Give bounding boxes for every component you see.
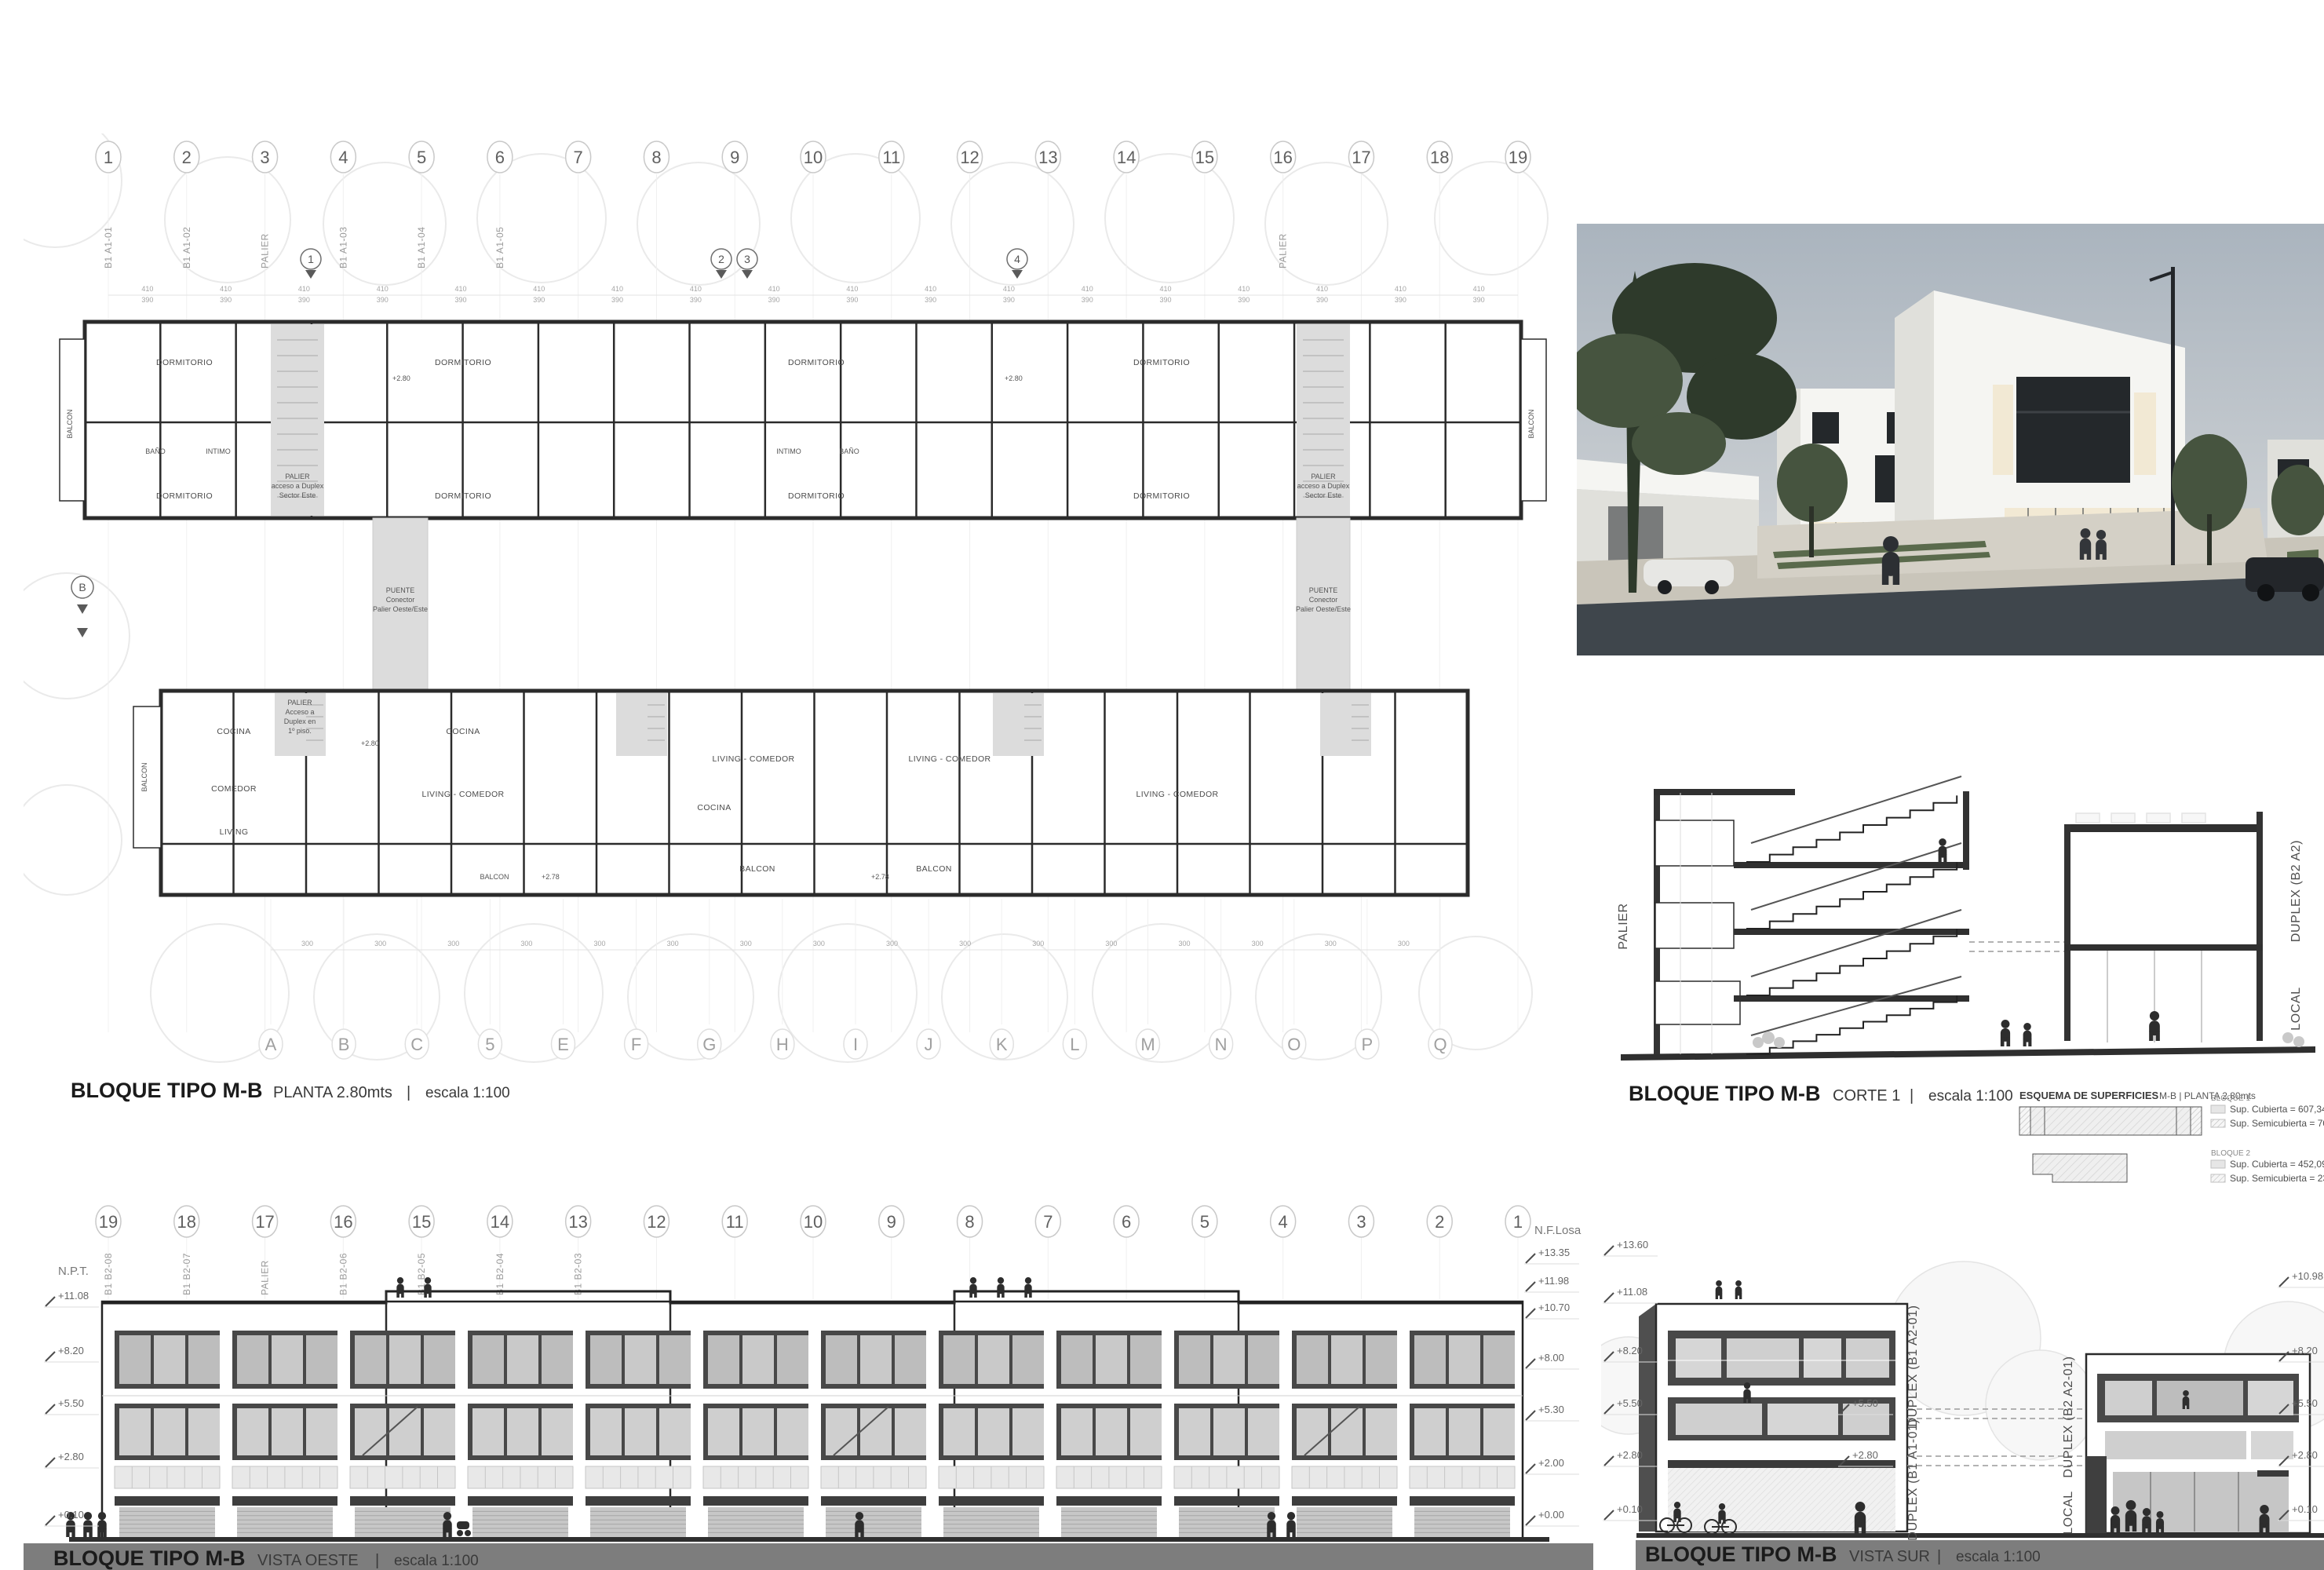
- level-mark: +13.60: [1603, 1239, 1658, 1256]
- generated-label: C: [410, 1035, 423, 1054]
- level-label: +2.80: [361, 739, 379, 747]
- generated-label: B1 A1-03: [337, 227, 348, 268]
- section-subtitle: CORTE 1: [1833, 1087, 1900, 1104]
- plan-connectors: PUENTE Conector Palier Oeste/Este PUENTE…: [373, 518, 1351, 691]
- room-label: COCINA: [217, 727, 250, 736]
- room-label: BALCON: [739, 864, 775, 874]
- generated-label: 300: [447, 940, 459, 947]
- generated-label: L: [1070, 1035, 1079, 1054]
- level-mark: +11.98: [1524, 1275, 1579, 1292]
- generated-label: 390: [454, 296, 466, 304]
- plan-title: BLOQUE TIPO M-B: [71, 1079, 263, 1102]
- palier-caption: PALIER: [287, 699, 312, 706]
- generated-label: 14: [1117, 148, 1136, 167]
- oeste-title-divider: |: [375, 1552, 379, 1569]
- generated-label: 5: [417, 148, 426, 167]
- person-silhouette: [1716, 1280, 1723, 1299]
- esquema-bloque2-cubierta: Sup. Cubierta = 452,09: [2230, 1159, 2324, 1170]
- generated-label: 15: [412, 1212, 431, 1232]
- generated-label: DUPLEX (B1 A1-01): [1906, 1418, 1920, 1540]
- generated-label: 390: [1395, 296, 1406, 304]
- generated-label: +10.98: [2292, 1270, 2323, 1282]
- esquema-bloque2-semicubierta: Sup. Semicubierta = 233,33: [2230, 1173, 2324, 1184]
- esquema-block: ESQUEMA DE SUPERFICIES M-B | PLANTA 2.80…: [2019, 1090, 2324, 1184]
- generated-label: +0.10: [1617, 1503, 1643, 1515]
- floor-plan-drawing: 1B1 A1-012B1 A1-023PALIER4B1 A1-035B1 A1…: [24, 133, 1578, 1115]
- generated-label: 300: [667, 940, 679, 947]
- generated-label: 8: [651, 148, 661, 167]
- generated-label: 390: [925, 296, 936, 304]
- level-mark: +10.70: [1524, 1302, 1579, 1319]
- generated-label: J: [925, 1035, 933, 1054]
- generated-label: 16: [1273, 148, 1292, 167]
- generated-label: +11.08: [1617, 1286, 1647, 1298]
- sur-left-building: [1639, 1304, 1907, 1532]
- level-label: +2.78: [542, 873, 560, 881]
- generated-label: B1 B2-07: [181, 1253, 192, 1295]
- section-bridge: [1969, 942, 2064, 951]
- generated-label: 5: [1200, 1212, 1209, 1232]
- generated-label: 410: [768, 285, 780, 293]
- generated-label: DUPLEX (B2 A2-01): [2062, 1356, 2075, 1477]
- room-label: COCINA: [697, 803, 731, 812]
- generated-label: I: [853, 1035, 858, 1054]
- room-label: BALCON: [1527, 409, 1535, 438]
- generated-label: 1: [1513, 1212, 1523, 1232]
- person-silhouette: [969, 1277, 976, 1298]
- generated-label: G: [702, 1035, 716, 1054]
- generated-label: 6: [495, 148, 505, 167]
- south-elevation-drawing: +13.60+11.08+8.20+5.50+2.80+0.10+10.98+8…: [1601, 1221, 2324, 1570]
- generated-label: PALIER: [260, 233, 271, 268]
- level-mark: +8.00: [1524, 1352, 1579, 1369]
- room-label: DORMITORIO: [435, 491, 491, 501]
- palier-caption: acceso a Duplex: [272, 482, 324, 490]
- room-label: DORMITORIO: [788, 491, 845, 501]
- generated-label: 13: [568, 1212, 587, 1232]
- generated-label: 300: [1252, 940, 1264, 947]
- generated-label: 410: [377, 285, 389, 293]
- generated-label: N: [1215, 1035, 1228, 1054]
- generated-label: 410: [1082, 285, 1093, 293]
- generated-label: 1: [308, 253, 314, 265]
- esquema-bloque1-name: BLOQUE 1: [2211, 1094, 2250, 1103]
- generated-label: +11.98: [1538, 1275, 1569, 1287]
- puente-caption: Conector: [1309, 596, 1338, 604]
- generated-label: 9: [730, 148, 739, 167]
- generated-label: 300: [886, 940, 898, 947]
- generated-label: 410: [611, 285, 623, 293]
- person-silhouette: [396, 1277, 403, 1298]
- generated-label: 410: [1003, 285, 1015, 293]
- generated-label: 390: [1082, 296, 1093, 304]
- oeste-groundline: [69, 1537, 1549, 1542]
- generated-label: B1 A1-02: [181, 227, 192, 268]
- section-local-label: LOCAL: [2289, 987, 2303, 1030]
- generated-label: +8.00: [1538, 1352, 1564, 1364]
- generated-label: +11.08: [58, 1290, 89, 1302]
- generated-label: 11: [882, 148, 900, 167]
- room-label: INTIMO: [776, 447, 801, 455]
- generated-label: 390: [141, 296, 153, 304]
- generated-label: 3: [744, 253, 750, 265]
- generated-label: +13.35: [1538, 1247, 1570, 1258]
- generated-label: +13.60: [1617, 1239, 1648, 1251]
- oeste-title: BLOQUE TIPO M-B: [53, 1546, 246, 1570]
- generated-label: 390: [533, 296, 545, 304]
- generated-label: A: [265, 1035, 277, 1054]
- sur-title-divider: |: [1937, 1548, 1941, 1565]
- person-silhouette: [1735, 1280, 1742, 1299]
- level-mark: +10.98: [2278, 1270, 2324, 1287]
- generated-label: 410: [1395, 285, 1406, 293]
- generated-label: 300: [520, 940, 532, 947]
- person-silhouette: [2001, 1020, 2010, 1046]
- room-label: DORMITORIO: [1133, 358, 1190, 367]
- esquema-bloque1-semicubierta: Sup. Semicubierta = 70,97: [2230, 1118, 2324, 1129]
- room-label: COMEDOR: [211, 784, 257, 794]
- generated-label: B1 B2-03: [573, 1253, 584, 1295]
- generated-label: +0.10: [58, 1509, 84, 1521]
- generated-label: 6: [1122, 1212, 1131, 1232]
- plan-scale: escala 1:100: [425, 1085, 510, 1101]
- sur-right-building: [2086, 1354, 2310, 1533]
- plan-title-divider: |: [407, 1084, 410, 1101]
- generated-label: 390: [298, 296, 310, 304]
- west-elevation-drawing: 19B1 B2-0818B1 B2-0717PALIER16B1 B2-0615…: [24, 1193, 1593, 1570]
- palier-caption: acceso a Duplex: [1297, 482, 1350, 490]
- level-label: +2.78: [871, 873, 889, 881]
- room-label: BALCON: [66, 409, 74, 438]
- generated-label: 17: [1352, 148, 1370, 167]
- generated-label: +5.50: [1852, 1397, 1878, 1409]
- room-label: DORMITORIO: [435, 358, 491, 367]
- generated-label: +5.50: [2292, 1397, 2318, 1409]
- esquema-bloque1-cubierta: Sup. Cubierta = 607,34: [2230, 1104, 2324, 1115]
- generated-label: +8.20: [1617, 1345, 1643, 1356]
- section-right-block: [2064, 812, 2263, 1042]
- level-mark: +0.00: [1524, 1509, 1579, 1526]
- generated-label: B1 B2-06: [337, 1253, 348, 1295]
- generated-label: E: [557, 1035, 569, 1054]
- level-mark: +11.08: [1603, 1286, 1658, 1303]
- level-mark: +2.00: [1524, 1457, 1579, 1474]
- generated-label: 300: [1032, 940, 1044, 947]
- generated-label: 19: [99, 1212, 118, 1232]
- generated-label: DUPLEX (B1 A2-01): [1906, 1305, 1920, 1426]
- section-title-divider: |: [1910, 1087, 1914, 1104]
- level-mark: +5.50: [44, 1397, 99, 1415]
- generated-label: 14: [491, 1212, 509, 1232]
- palier-caption: PALIER: [285, 473, 310, 480]
- esquema-title: ESQUEMA DE SUPERFICIES: [2019, 1090, 2159, 1101]
- generated-label: N.P.T.: [58, 1265, 89, 1278]
- room-label: LIVING - COMEDOR: [422, 790, 505, 799]
- level-mark: +5.30: [1524, 1404, 1579, 1421]
- room-label: BAÑO: [839, 447, 859, 455]
- plan-lower-strip: PALIER Acceso a Duplex en 1º piso. COCIN…: [133, 691, 1468, 895]
- generated-label: 410: [846, 285, 858, 293]
- generated-label: B1 A1-01: [103, 227, 114, 268]
- plan-upper-strip: DORMITORIO BAÑO INTIMO DORMITORIO DORMIT…: [60, 322, 1546, 518]
- section-drawing: PALIER DUPLEX (B2 A2) LOCAL BLOQUE TIPO …: [1605, 746, 2324, 1201]
- section-left-block: [1654, 776, 1969, 1054]
- sur-title: BLOQUE TIPO M-B: [1645, 1543, 1837, 1566]
- generated-label: 4: [1279, 1212, 1288, 1232]
- room-label: DORMITORIO: [1133, 491, 1190, 501]
- room-label: BALCON: [140, 762, 148, 791]
- esquema-bloque2-shape: [2033, 1154, 2127, 1182]
- room-label: DORMITORIO: [156, 358, 213, 367]
- generated-label: +8.20: [2292, 1345, 2318, 1356]
- generated-label: 8: [965, 1212, 974, 1232]
- generated-label: 300: [1325, 940, 1337, 947]
- generated-label: 300: [1398, 940, 1410, 947]
- section-title: BLOQUE TIPO M-B: [1629, 1082, 1821, 1105]
- puente-caption: Palier Oeste/Este: [373, 605, 428, 613]
- generated-label: B1 A1-05: [494, 227, 505, 268]
- generated-label: +0.00: [1538, 1509, 1564, 1521]
- generated-label: +8.20: [58, 1345, 84, 1356]
- generated-label: 5: [485, 1035, 494, 1054]
- generated-label: 390: [220, 296, 232, 304]
- room-label: LIVING - COMEDOR: [909, 754, 991, 764]
- generated-label: +2.80: [2292, 1449, 2318, 1461]
- person-silhouette: [424, 1277, 431, 1298]
- room-label: BALCON: [916, 864, 952, 874]
- generated-label: 17: [255, 1212, 274, 1232]
- room-label: COCINA: [446, 727, 480, 736]
- generated-label: 18: [177, 1212, 196, 1232]
- generated-label: B1 B2-08: [103, 1253, 114, 1295]
- generated-label: 390: [768, 296, 780, 304]
- generated-label: 4: [338, 148, 348, 167]
- generated-label: 4: [1014, 253, 1020, 265]
- generated-label: 12: [960, 148, 979, 167]
- generated-label: 10: [804, 1212, 823, 1232]
- oeste-grid: 19B1 B2-0818B1 B2-0717PALIER16B1 B2-0615…: [96, 1206, 1530, 1299]
- generated-label: 2: [718, 253, 724, 265]
- oeste-levels-left: N.P.T.+11.08+8.20+5.50+2.80+0.10: [44, 1265, 99, 1526]
- esquema-bloque2-name: BLOQUE 2: [2211, 1149, 2250, 1158]
- generated-label: 410: [1159, 285, 1171, 293]
- generated-label: N.F.Losa: [1534, 1224, 1582, 1237]
- generated-label: M: [1140, 1035, 1155, 1054]
- generated-label: 410: [533, 285, 545, 293]
- generated-label: 410: [1316, 285, 1328, 293]
- generated-label: 7: [574, 148, 583, 167]
- generated-label: +5.30: [1538, 1404, 1564, 1415]
- generated-label: O: [1287, 1035, 1301, 1054]
- section-palier-label: PALIER: [1617, 903, 1630, 949]
- generated-label: 300: [1179, 940, 1191, 947]
- generated-label: +2.80: [1617, 1449, 1643, 1461]
- generated-label: 9: [887, 1212, 896, 1232]
- room-label: DORMITORIO: [788, 358, 845, 367]
- generated-label: 410: [298, 285, 310, 293]
- generated-label: 300: [1105, 940, 1117, 947]
- generated-label: 7: [1043, 1212, 1053, 1232]
- generated-label: 410: [1238, 285, 1250, 293]
- generated-label: 410: [454, 285, 466, 293]
- generated-label: 13: [1038, 148, 1057, 167]
- generated-label: 18: [1430, 148, 1449, 167]
- section-ground: [1621, 1046, 2315, 1061]
- plan-subtitle: PLANTA 2.80mts: [273, 1084, 392, 1101]
- person-silhouette: [1024, 1277, 1031, 1298]
- generated-label: 390: [611, 296, 623, 304]
- section-title-block: BLOQUE TIPO M-B CORTE 1 | escala 1:100: [1629, 1082, 2013, 1105]
- generated-label: 390: [1238, 296, 1250, 304]
- palier-caption: Duplex en: [284, 717, 316, 725]
- generated-label: 390: [1316, 296, 1328, 304]
- palier-caption: Sector Este: [279, 491, 316, 499]
- level-mark: +11.08: [44, 1290, 99, 1307]
- generated-label: 390: [1473, 296, 1485, 304]
- palier-caption: Acceso a: [285, 708, 314, 716]
- generated-label: 390: [846, 296, 858, 304]
- generated-label: 3: [1356, 1212, 1366, 1232]
- room-label: DORMITORIO: [156, 491, 213, 501]
- plan-title-block: BLOQUE TIPO M-B PLANTA 2.80mts | escala …: [71, 1079, 510, 1102]
- generated-label: 12: [647, 1212, 666, 1232]
- generated-label: 410: [925, 285, 936, 293]
- generated-label: 300: [374, 940, 386, 947]
- sur-subtitle: VISTA SUR: [1849, 1548, 1930, 1565]
- generated-label: 410: [690, 285, 702, 293]
- palier-caption: PALIER: [1311, 473, 1336, 480]
- palier-caption: 1º piso.: [288, 727, 312, 735]
- generated-label: 410: [220, 285, 232, 293]
- generated-label: LOCAL: [2062, 1491, 2075, 1534]
- generated-label: 15: [1195, 148, 1214, 167]
- oeste-levels-right: N.F.Losa+13.35+11.98+10.70+8.00+5.30+2.0…: [1524, 1224, 1582, 1526]
- generated-label: +2.00: [1538, 1457, 1564, 1469]
- level-label: +2.80: [392, 374, 410, 382]
- section-marker-arrow: [77, 604, 88, 614]
- oeste-facade: [102, 1291, 1523, 1539]
- generated-label: 1: [104, 148, 113, 167]
- generated-label: +5.50: [1617, 1397, 1643, 1409]
- generated-label: PALIER: [260, 1260, 271, 1295]
- generated-label: 300: [740, 940, 752, 947]
- generated-label: H: [776, 1035, 789, 1054]
- generated-label: 390: [690, 296, 702, 304]
- puente-caption: PUENTE: [386, 586, 415, 594]
- section-duplex-label: DUPLEX (B2 A2): [2289, 840, 2303, 942]
- generated-label: +2.80: [58, 1451, 84, 1462]
- room-label: LIVING - COMEDOR: [713, 754, 795, 764]
- generated-label: Q: [1433, 1035, 1447, 1054]
- person-silhouette: [997, 1277, 1004, 1298]
- generated-label: 410: [1473, 285, 1485, 293]
- room-label: LIVING: [220, 827, 249, 837]
- generated-label: 300: [301, 940, 313, 947]
- oeste-scale: escala 1:100: [394, 1553, 479, 1569]
- section-scale: escala 1:100: [1928, 1088, 2013, 1104]
- generated-label: +2.80: [1852, 1449, 1878, 1461]
- person-silhouette: [1939, 838, 1947, 862]
- room-label: INTIMO: [206, 447, 231, 455]
- generated-label: 390: [1003, 296, 1015, 304]
- generated-label: 390: [377, 296, 389, 304]
- generated-label: 2: [1435, 1212, 1444, 1232]
- level-mark: +8.20: [44, 1345, 99, 1362]
- generated-label: B: [338, 1035, 350, 1054]
- section-marker-arrow2: [77, 628, 88, 637]
- level-label: +2.80: [1005, 374, 1023, 382]
- generated-label: B1 B2-04: [494, 1253, 505, 1295]
- generated-label: 300: [594, 940, 606, 947]
- section-marker-label: B: [78, 581, 86, 593]
- generated-label: 16: [334, 1212, 352, 1232]
- oeste-subtitle: VISTA OESTE: [257, 1552, 359, 1569]
- generated-label: +5.50: [58, 1397, 84, 1409]
- level-mark: +2.80: [44, 1451, 99, 1468]
- puente-caption: PUENTE: [1309, 586, 1338, 594]
- generated-label: 300: [959, 940, 971, 947]
- generated-label: 2: [182, 148, 192, 167]
- presentation-sheet: 1B1 A1-012B1 A1-023PALIER4B1 A1-035B1 A1…: [0, 0, 2324, 1570]
- room-label: BAÑO: [145, 447, 166, 455]
- room-label: BALCON: [480, 873, 509, 881]
- exterior-render-image: [1577, 224, 2324, 655]
- person-silhouette: [83, 1512, 93, 1537]
- generated-label: B1 A1-04: [416, 227, 427, 268]
- section-stairs: [1746, 776, 1961, 1054]
- generated-label: 11: [726, 1212, 744, 1232]
- generated-label: +10.70: [1538, 1302, 1570, 1313]
- plan-grid-bottom: ABC5EFGHIJKLMNOPQ: [259, 899, 1452, 1059]
- generated-label: 19: [1509, 148, 1527, 167]
- room-label: LIVING - COMEDOR: [1136, 790, 1219, 799]
- generated-label: P: [1362, 1035, 1374, 1054]
- generated-label: 410: [141, 285, 153, 293]
- generated-label: PALIER: [1278, 233, 1289, 268]
- generated-label: 300: [813, 940, 825, 947]
- section-marker-b: B: [71, 576, 93, 637]
- sur-groundline: [1636, 1533, 2324, 1538]
- puente-caption: Conector: [386, 596, 415, 604]
- person-silhouette: [2023, 1023, 2032, 1046]
- sur-scale: escala 1:100: [1956, 1549, 2041, 1565]
- generated-label: 390: [1159, 296, 1171, 304]
- generated-label: K: [996, 1035, 1008, 1054]
- level-mark: +13.35: [1524, 1247, 1579, 1264]
- palier-caption: Sector Este: [1305, 491, 1342, 499]
- generated-label: +0.10: [2292, 1503, 2318, 1515]
- generated-label: 10: [804, 148, 823, 167]
- generated-label: F: [631, 1035, 641, 1054]
- puente-caption: Palier Oeste/Este: [1296, 605, 1351, 613]
- generated-label: 3: [260, 148, 269, 167]
